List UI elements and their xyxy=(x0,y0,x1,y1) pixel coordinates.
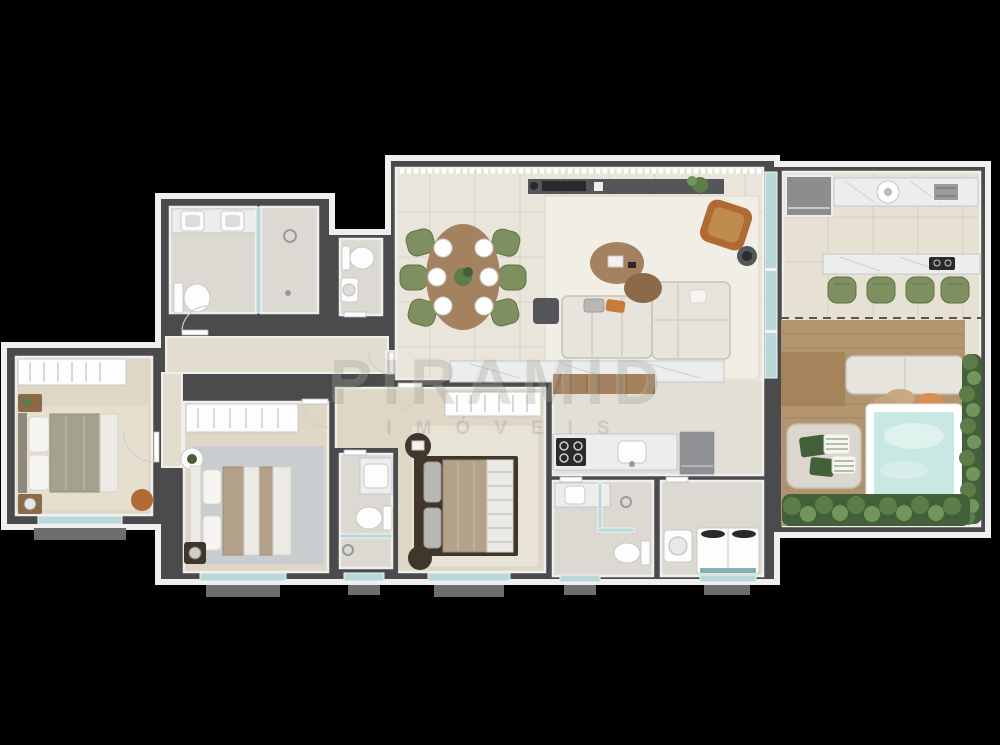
coffee-table-book xyxy=(608,256,623,267)
nightstand-clock xyxy=(24,498,36,510)
bedroom-left-wardrobe xyxy=(18,359,126,385)
terrace-sink-drain xyxy=(884,188,892,196)
bed-pillow xyxy=(29,417,49,452)
console-plant xyxy=(687,176,697,186)
armchair-side-table-top xyxy=(742,251,752,261)
ensuite-sill xyxy=(348,585,380,595)
side-table-book xyxy=(412,441,424,450)
watermark-subtitle: IMÓVEIS xyxy=(384,415,631,437)
suite-bathroom-door xyxy=(182,330,208,335)
dining-chair xyxy=(400,265,427,290)
ensuite-sink xyxy=(364,464,388,488)
guest-wc-door xyxy=(344,312,366,317)
console-decor xyxy=(594,182,603,191)
dining-chair xyxy=(499,265,526,290)
bed-duvet xyxy=(443,460,487,552)
bed-quilted-runner xyxy=(487,460,513,552)
bedroom-left-window xyxy=(38,516,122,524)
chaise-pillow xyxy=(690,290,706,303)
kitchen-sink xyxy=(618,441,646,463)
place-setting xyxy=(475,239,493,257)
service-toilet-bowl xyxy=(614,543,640,563)
service-bathroom-window xyxy=(560,575,600,582)
corridor-floor xyxy=(162,373,182,467)
pouf xyxy=(131,489,153,511)
cooktop xyxy=(556,438,586,466)
master-nightstand xyxy=(408,546,432,570)
toilet-tank xyxy=(174,283,183,313)
daybed-pillow-striped xyxy=(832,456,856,474)
washer-dryer xyxy=(697,528,759,574)
nightstand-plant xyxy=(22,397,32,407)
sofa-pillow-gray xyxy=(584,299,604,312)
coffee-table-decor xyxy=(628,262,636,268)
daybed-pillow-green xyxy=(799,434,828,457)
service-shower-glass-h xyxy=(598,528,634,532)
laundry-sill xyxy=(704,585,750,595)
service-toilet-tank xyxy=(641,541,650,565)
place-setting xyxy=(434,297,452,315)
console-decor xyxy=(530,182,538,190)
bed-headboard xyxy=(18,413,27,493)
ensuite-window xyxy=(344,573,384,581)
place-setting xyxy=(475,297,493,315)
washer-front xyxy=(700,568,756,573)
bedroom-middle-door xyxy=(302,399,328,404)
bedroom-left-sill xyxy=(34,528,126,540)
bedroom-middle-wardrobe xyxy=(186,404,298,432)
shower-glass-panel xyxy=(256,207,261,313)
ensuite-toilet-tank xyxy=(383,506,392,530)
wc-washbasin-bowl xyxy=(343,284,355,296)
watermark-title: PIRAMID xyxy=(328,344,668,416)
floor-plan: PIRAMID PIRAMID IMÓVEIS IMÓVEIS xyxy=(0,0,1000,745)
cooktop-counter xyxy=(553,434,677,470)
ensuite-shower-glass xyxy=(340,534,392,538)
service-bathroom-sill xyxy=(564,585,596,595)
terrace-glass-slider xyxy=(765,172,777,378)
laundry-window xyxy=(700,575,756,582)
wc-toilet-bowl xyxy=(350,247,374,269)
service-shower-glass-v xyxy=(598,483,602,531)
bar-stool xyxy=(828,277,856,303)
refrigerator xyxy=(679,431,715,475)
daybed xyxy=(787,424,861,488)
laundry-door xyxy=(666,477,688,482)
table-centerpiece xyxy=(463,267,473,277)
plunge-pool xyxy=(866,404,963,504)
vanity-sink-left-basin xyxy=(185,215,200,227)
ensuite-toilet-bowl xyxy=(356,507,382,529)
bedroom-middle-sill xyxy=(206,585,280,597)
place-setting xyxy=(480,268,498,286)
bed-duvet xyxy=(50,414,100,492)
ensuite-door xyxy=(344,450,366,455)
built-in-grill xyxy=(933,183,959,201)
bed-pillow xyxy=(29,455,49,490)
bed-pillow xyxy=(203,470,221,504)
sofa-side-table xyxy=(533,298,559,324)
place-setting xyxy=(428,268,446,286)
grill-cabinet xyxy=(786,176,832,216)
master-bed xyxy=(414,456,518,556)
daybed-pillow-green xyxy=(809,457,835,477)
wc-toilet-tank xyxy=(342,246,350,270)
daybed-pillow-striped xyxy=(824,434,850,454)
shower-room-floor xyxy=(261,207,318,313)
service-sink xyxy=(565,486,585,504)
bar-stool xyxy=(867,277,895,303)
bed-pillow xyxy=(424,508,441,548)
deck-step xyxy=(781,352,845,406)
side-table-plant xyxy=(187,454,197,464)
kitchen-faucet xyxy=(629,461,635,467)
bed-pillow xyxy=(424,462,441,502)
master-window xyxy=(428,573,510,581)
nightstand-clock xyxy=(189,547,201,559)
bed-foot-blanket xyxy=(273,467,291,555)
bedroom-left-door xyxy=(154,432,159,462)
bed-center-fold xyxy=(244,467,259,555)
tv xyxy=(542,181,586,191)
bar-stool xyxy=(906,277,934,303)
vanity-sink-right-basin xyxy=(225,215,240,227)
service-bathroom-door xyxy=(560,477,582,482)
floor-plan-render: PIRAMID PIRAMID IMÓVEIS IMÓVEIS xyxy=(0,0,1000,745)
utility-sink-basin xyxy=(669,537,687,555)
terrace-counter xyxy=(834,178,978,206)
place-setting xyxy=(434,239,452,257)
bar-stool xyxy=(941,277,969,303)
dining-set xyxy=(400,224,526,330)
bedroom-middle-window xyxy=(200,573,286,581)
shower-control xyxy=(285,290,291,296)
master-sill xyxy=(434,585,504,597)
planter-bottom xyxy=(782,494,970,526)
bed-runner xyxy=(100,414,118,492)
